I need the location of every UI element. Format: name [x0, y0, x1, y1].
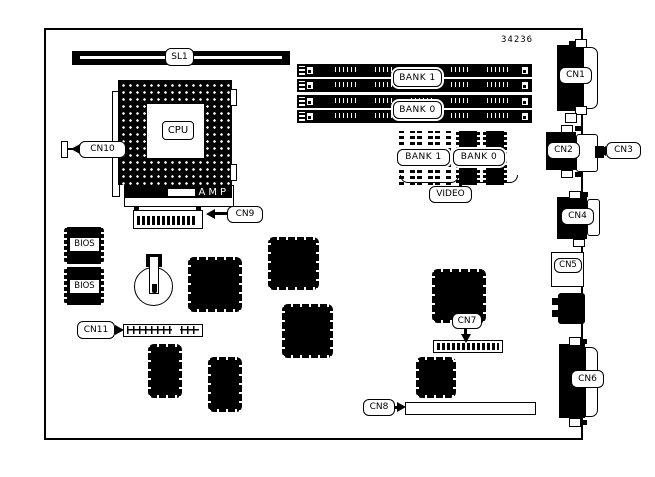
cn6-nub-top: [582, 339, 587, 344]
simm-clip-right: [521, 112, 529, 121]
cn11-pointer: [115, 325, 124, 335]
keyboard-connector-tab: [552, 310, 559, 317]
cn6-label: CN6: [571, 370, 604, 388]
cn8-label: CN8: [363, 399, 395, 416]
video-brace-left: [400, 175, 459, 183]
cn8-connector: [405, 402, 536, 415]
cpu-label: CPU: [162, 121, 194, 140]
amp-connector: AMP: [124, 185, 234, 207]
cn6-nub-bottom: [582, 420, 587, 425]
cn6-tab-bottom: [569, 418, 581, 427]
simm-clip-right: [521, 97, 529, 106]
cpu-socket-lug-top: [230, 89, 237, 106]
video-brace-right: [462, 175, 518, 183]
amp-label: AMP: [199, 187, 230, 198]
cn2-tab-top: [561, 125, 573, 133]
cn9-connector-pins: [137, 216, 197, 225]
cn4-tab-top: [569, 191, 581, 199]
cn11-connector-key: [172, 325, 180, 335]
cn1-nub-top: [569, 41, 575, 46]
cn9-pointer: [206, 209, 215, 219]
controller-chip-c: [282, 304, 333, 358]
motherboard-diagram: 34236 SL1 CPU AMP CN10 CN9: [0, 0, 655, 477]
video-bank1-label: BANK 1: [397, 149, 450, 166]
video-label: VIDEO: [429, 186, 472, 203]
simm-clip-left: [306, 81, 314, 90]
simm-bank0-label: BANK 0: [393, 101, 442, 119]
simm-clip-left: [306, 66, 314, 75]
cn5-tab-top: [573, 239, 585, 247]
cn7-connector-pins: [437, 343, 499, 350]
cn11-label: CN11: [77, 321, 115, 339]
simm-slot-pins: [299, 112, 305, 121]
cn7-label: CN7: [452, 313, 482, 329]
small-chip-d: [148, 344, 182, 398]
cn2-label: CN2: [547, 142, 580, 159]
simm-slot-pins: [299, 66, 305, 75]
simm-slot-pins: [299, 81, 305, 90]
controller-chip-a: [188, 257, 242, 312]
cn5-label: CN5: [554, 258, 582, 273]
cn9-label: CN9: [227, 206, 263, 223]
sl1-label: SL1: [165, 48, 194, 66]
cn10-label: CN10: [79, 141, 126, 158]
keyboard-connector-tab: [552, 298, 559, 305]
cn1-tab-top: [575, 39, 587, 48]
cn9-connector: [133, 210, 203, 229]
simm-clip-left: [306, 97, 314, 106]
cn2-nub-bottom: [575, 172, 583, 177]
amp-connector-bar: AMP: [125, 186, 232, 198]
simm-slot-pins: [299, 97, 305, 106]
video-bank0-label: BANK 0: [453, 149, 505, 166]
cn9-pointer-line: [214, 212, 228, 215]
keyboard-connector: [558, 293, 585, 324]
io-chip: [416, 357, 456, 398]
cpu-socket-lug-bottom: [230, 164, 237, 181]
battery-clip-tip: [152, 284, 157, 293]
part-number: 34236: [501, 35, 533, 45]
cn2-nub-top: [575, 126, 583, 131]
bios1-label: BIOS: [69, 237, 100, 252]
cn4-label: CN4: [561, 208, 594, 225]
amp-connector-key: [168, 189, 195, 196]
simm-clip-right: [521, 81, 529, 90]
bios2-label: BIOS: [69, 279, 100, 294]
cn7-pointer: [461, 334, 471, 343]
cn11-connector: [123, 324, 203, 337]
cn11-connector-pins: [127, 326, 199, 334]
simm-clip-right: [521, 66, 529, 75]
cn2-tab-bottom: [561, 170, 573, 178]
cn6-tab-top: [569, 337, 581, 346]
cn8-pointer: [397, 402, 406, 412]
cn1-label: CN1: [559, 67, 592, 84]
simm-clip-left: [306, 112, 314, 121]
cn3-label: CN3: [606, 142, 641, 159]
simm-bank1-label: BANK 1: [393, 69, 442, 87]
cn4-nub-top: [582, 192, 588, 197]
small-chip-e: [208, 357, 242, 412]
bracket-tab: [565, 113, 577, 123]
controller-chip-b: [268, 237, 319, 290]
cn3-pointer: [597, 146, 606, 156]
